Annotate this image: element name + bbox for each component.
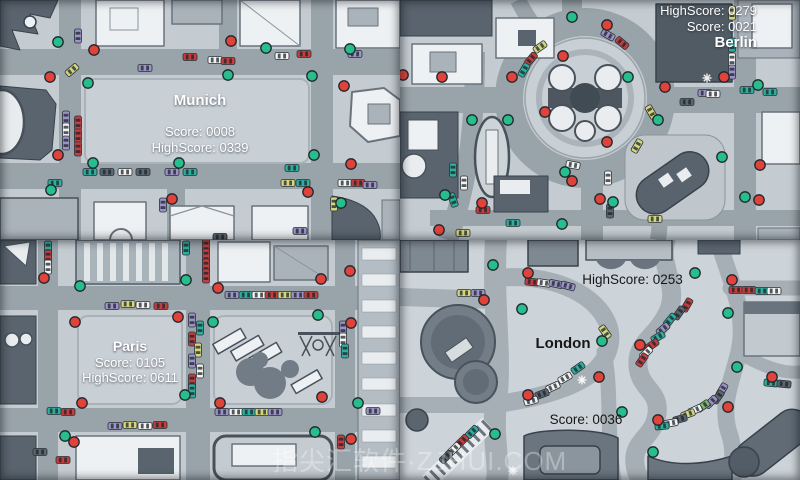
traffic-light[interactable] <box>567 176 577 186</box>
city-label-paris: Paris <box>78 338 182 355</box>
traffic-light[interactable] <box>69 437 79 447</box>
traffic-light[interactable] <box>353 398 363 408</box>
car <box>118 169 132 176</box>
car <box>100 169 114 176</box>
car <box>208 57 222 64</box>
traffic-light[interactable] <box>400 70 408 80</box>
traffic-light[interactable] <box>753 80 763 90</box>
car <box>215 409 229 416</box>
quadrant-paris: Paris Score: 0105 HighScore: 0611 <box>0 240 400 480</box>
traffic-light[interactable] <box>517 304 527 314</box>
car <box>285 165 299 172</box>
car <box>461 176 468 190</box>
traffic-light[interactable] <box>560 167 570 177</box>
car <box>225 292 239 299</box>
hud-munich: Munich Score: 0008 HighScore: 0339 <box>86 92 314 155</box>
traffic-light[interactable] <box>53 37 63 47</box>
traffic-light[interactable] <box>719 72 729 82</box>
hud-berlin: HighScore: 0279 Score: 0021 Berlin <box>660 3 757 52</box>
quadrant-berlin: HighScore: 0279 Score: 0021 Berlin <box>400 0 800 240</box>
car <box>239 292 253 299</box>
traffic-light[interactable] <box>602 137 612 147</box>
highscore-london: HighScore: 0253 <box>545 272 720 288</box>
traffic-light[interactable] <box>346 318 356 328</box>
map-paris <box>0 240 400 480</box>
traffic-light[interactable] <box>336 198 346 208</box>
traffic-light[interactable] <box>317 392 327 402</box>
highscore-paris: HighScore: 0611 <box>78 370 182 386</box>
car <box>278 292 292 299</box>
traffic-light[interactable] <box>557 219 567 229</box>
traffic-light[interactable] <box>303 187 313 197</box>
traffic-light[interactable] <box>717 152 727 162</box>
traffic-light[interactable] <box>60 431 70 441</box>
car <box>363 182 377 189</box>
car <box>138 65 152 72</box>
car <box>183 241 190 255</box>
traffic-light[interactable] <box>213 283 223 293</box>
traffic-light[interactable] <box>660 82 670 92</box>
car <box>138 423 152 430</box>
car <box>268 409 282 416</box>
traffic-light[interactable] <box>602 20 612 30</box>
car <box>121 301 135 308</box>
traffic-light[interactable] <box>346 159 356 169</box>
traffic-light[interactable] <box>346 434 356 444</box>
city-label-berlin: Berlin <box>660 34 757 52</box>
traffic-light[interactable] <box>437 72 447 82</box>
hud-paris: Paris Score: 0105 HighScore: 0611 <box>78 338 182 386</box>
car <box>47 408 61 415</box>
car <box>706 91 720 98</box>
car <box>304 292 318 299</box>
traffic-light[interactable] <box>339 81 349 91</box>
car <box>767 288 781 295</box>
traffic-light[interactable] <box>653 415 663 425</box>
traffic-light[interactable] <box>467 115 477 125</box>
traffic-light[interactable] <box>83 78 93 88</box>
traffic-light[interactable] <box>39 273 49 283</box>
car <box>648 216 662 223</box>
traffic-light[interactable] <box>208 317 218 327</box>
traffic-light[interactable] <box>740 192 750 202</box>
highscore-berlin: HighScore: 0279 <box>660 3 757 19</box>
traffic-light[interactable] <box>567 12 577 22</box>
traffic-light[interactable] <box>732 362 742 372</box>
car <box>56 457 70 464</box>
city-label-london: London <box>513 335 613 353</box>
score-berlin: Score: 0021 <box>660 19 757 35</box>
car <box>342 344 349 358</box>
car <box>740 87 754 94</box>
car <box>45 260 52 274</box>
crash-icon <box>509 467 518 476</box>
car <box>229 409 243 416</box>
car <box>63 123 70 137</box>
traffic-light[interactable] <box>226 36 236 46</box>
city-label-munich: Munich <box>86 92 314 110</box>
car <box>123 422 137 429</box>
traffic-light[interactable] <box>479 295 489 305</box>
car <box>680 99 694 106</box>
car <box>75 142 82 156</box>
car <box>189 354 196 368</box>
car <box>105 303 119 310</box>
traffic-light[interactable] <box>345 266 355 276</box>
traffic-light[interactable] <box>53 150 63 160</box>
car <box>197 364 204 378</box>
traffic-light[interactable] <box>307 71 317 81</box>
car <box>183 169 197 176</box>
car <box>457 290 471 297</box>
car <box>275 53 289 60</box>
traffic-light[interactable] <box>215 398 225 408</box>
traffic-light[interactable] <box>45 72 55 82</box>
traffic-light[interactable] <box>434 225 444 235</box>
traffic-light[interactable] <box>310 427 320 437</box>
car <box>165 169 179 176</box>
car <box>506 220 520 227</box>
car <box>83 169 97 176</box>
quadrant-munich: Munich Score: 0008 HighScore: 0339 <box>0 0 400 240</box>
traffic-light[interactable] <box>523 390 533 400</box>
highscore-munich: HighScore: 0339 <box>86 140 314 156</box>
game-screen: Munich Score: 0008 HighScore: 0339 <box>0 0 800 480</box>
car <box>108 423 122 430</box>
car <box>763 89 777 96</box>
car <box>189 313 196 327</box>
traffic-light[interactable] <box>523 268 533 278</box>
traffic-light[interactable] <box>540 107 550 117</box>
car <box>366 408 380 415</box>
traffic-light[interactable] <box>767 372 777 382</box>
traffic-light[interactable] <box>623 72 633 82</box>
score-london: Score: 0036 <box>531 412 641 428</box>
traffic-light[interactable] <box>223 70 233 80</box>
traffic-light[interactable] <box>594 372 604 382</box>
crash-icon <box>703 74 712 83</box>
traffic-light[interactable] <box>75 281 85 291</box>
car <box>160 198 167 212</box>
car <box>291 292 305 299</box>
traffic-light[interactable] <box>316 274 326 284</box>
traffic-light[interactable] <box>608 197 618 207</box>
traffic-light[interactable] <box>755 160 765 170</box>
traffic-light[interactable] <box>440 190 450 200</box>
traffic-light[interactable] <box>89 45 99 55</box>
traffic-light[interactable] <box>653 115 663 125</box>
car <box>221 58 235 65</box>
car <box>153 422 167 429</box>
car <box>456 230 470 237</box>
car <box>33 449 47 456</box>
car <box>197 321 204 335</box>
traffic-light[interactable] <box>648 447 658 457</box>
car <box>75 116 82 130</box>
car <box>255 409 269 416</box>
score-paris: Score: 0105 <box>78 355 182 371</box>
car <box>293 228 307 235</box>
traffic-light[interactable] <box>70 317 80 327</box>
traffic-light[interactable] <box>173 312 183 322</box>
traffic-light[interactable] <box>754 195 764 205</box>
traffic-light[interactable] <box>727 275 737 285</box>
car <box>338 180 352 187</box>
traffic-light[interactable] <box>477 198 487 208</box>
car <box>296 180 310 187</box>
car <box>154 303 168 310</box>
car <box>63 136 70 150</box>
car <box>265 292 279 299</box>
quadrant-london: HighScore: 0253 London Score: 0036 <box>400 240 800 480</box>
traffic-light[interactable] <box>507 72 517 82</box>
traffic-light[interactable] <box>345 44 355 54</box>
traffic-light[interactable] <box>723 402 733 412</box>
traffic-light[interactable] <box>46 185 56 195</box>
car <box>252 292 266 299</box>
car <box>777 380 792 388</box>
traffic-light[interactable] <box>595 194 605 204</box>
car <box>242 409 256 416</box>
traffic-light[interactable] <box>490 429 500 439</box>
car <box>136 169 150 176</box>
traffic-light[interactable] <box>635 340 645 350</box>
traffic-light[interactable] <box>174 158 184 168</box>
traffic-light[interactable] <box>503 115 513 125</box>
traffic-light[interactable] <box>180 390 190 400</box>
car <box>75 129 82 143</box>
traffic-light[interactable] <box>181 275 191 285</box>
traffic-light[interactable] <box>167 194 177 204</box>
car <box>742 287 756 294</box>
car <box>297 51 311 58</box>
car <box>450 163 457 177</box>
traffic-light[interactable] <box>88 158 98 168</box>
car <box>338 435 345 449</box>
traffic-light[interactable] <box>723 308 733 318</box>
car <box>281 180 295 187</box>
crash-icon <box>578 376 587 385</box>
score-munich: Score: 0008 <box>86 124 314 140</box>
car <box>605 171 612 185</box>
traffic-light[interactable] <box>558 51 568 61</box>
car <box>183 54 197 61</box>
traffic-light[interactable] <box>261 43 271 53</box>
car <box>203 269 210 283</box>
car <box>61 409 75 416</box>
car <box>136 302 150 309</box>
car <box>75 29 82 43</box>
traffic-light[interactable] <box>488 260 498 270</box>
traffic-light[interactable] <box>313 310 323 320</box>
traffic-light[interactable] <box>77 398 87 408</box>
car <box>729 287 743 294</box>
